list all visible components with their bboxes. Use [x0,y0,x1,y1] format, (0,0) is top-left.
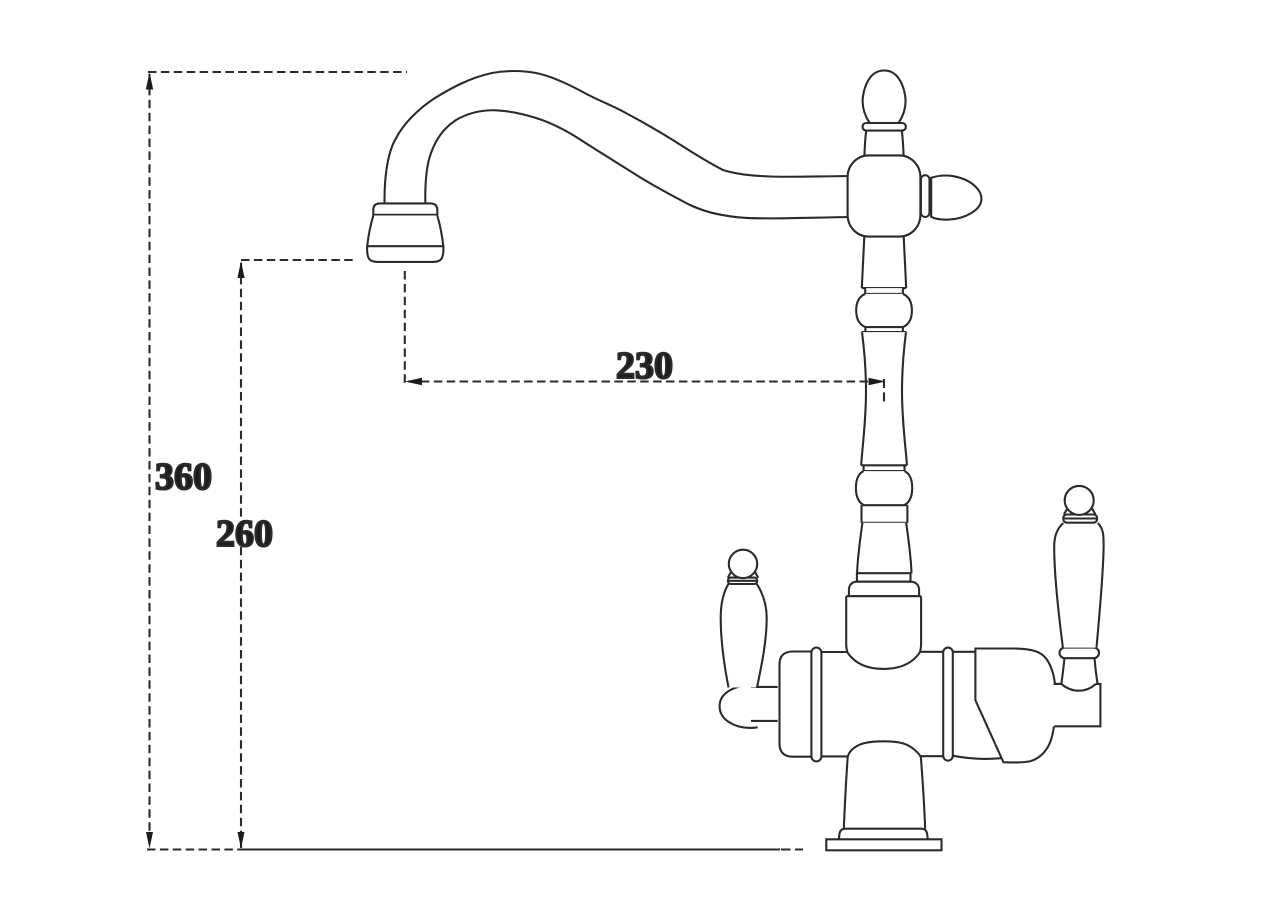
svg-text:260: 260 [216,513,273,555]
svg-text:360: 360 [155,456,212,498]
svg-text:230: 230 [616,345,673,387]
